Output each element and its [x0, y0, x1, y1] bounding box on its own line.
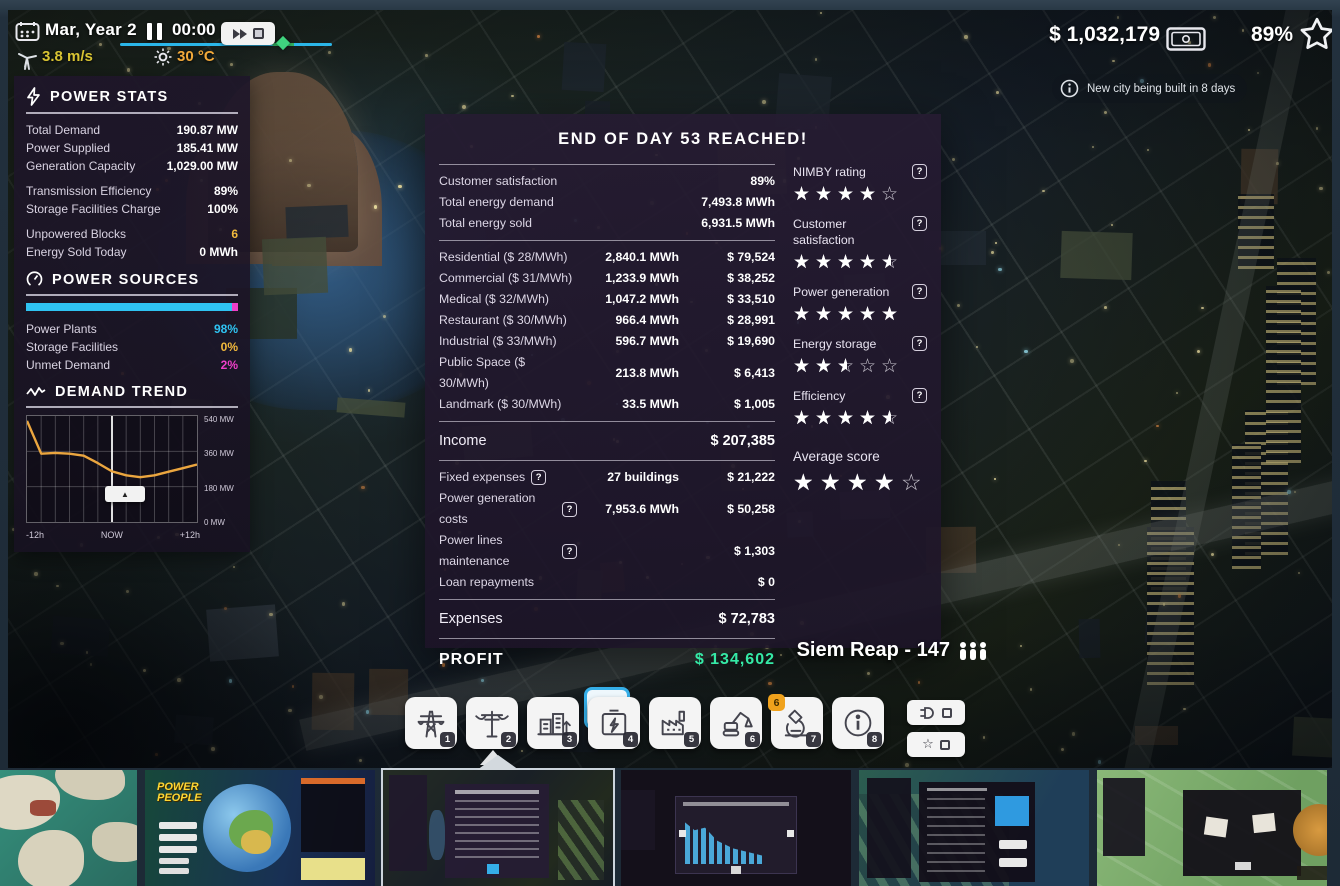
help-icon[interactable]: ?: [912, 284, 927, 299]
divider: [439, 240, 775, 241]
collapse-panel-button[interactable]: ▲: [105, 486, 145, 502]
notification-text: New city being built in 8 days: [1087, 83, 1235, 95]
rating-customer-satisfaction: Customer satisfaction?☆★☆★☆★☆★☆★: [793, 216, 927, 273]
star-icon: ☆★: [815, 184, 834, 205]
expense-row: Fixed expenses?27 buildings$ 21,222: [439, 467, 775, 488]
help-icon[interactable]: ?: [562, 544, 577, 559]
divider: [439, 599, 775, 600]
star-icon: ☆★: [793, 471, 816, 496]
expenses-row: Expenses$ 72,783: [439, 606, 775, 632]
star-icon: ☆★: [793, 356, 812, 377]
star-icon: ☆★: [881, 408, 900, 429]
thumbnail-chart-screen[interactable]: [621, 770, 851, 886]
hotkey-badge: 2: [501, 732, 516, 747]
summary-row: Customer satisfaction89%: [439, 171, 775, 192]
star-icon: ☆★: [837, 408, 856, 429]
thumbnail-map[interactable]: [0, 770, 137, 886]
star-icon: ☆★: [815, 304, 834, 325]
revenue-row: Medical ($ 32/MWh)1,047.2 MWh$ 33,510: [439, 289, 775, 310]
city-name-label: Siem Reap - 147: [668, 639, 988, 662]
power-overlay-toggle[interactable]: [907, 700, 965, 725]
plug-icon: [920, 706, 936, 720]
star-icon: ☆★: [901, 471, 924, 496]
star-icon: ☆★: [881, 252, 900, 273]
demand-trend-chart: 540 MW 360 MW 180 MW 0 MW: [26, 415, 238, 527]
star-icon: ☆★: [837, 184, 856, 205]
source-row: Power Plants98%: [26, 320, 238, 338]
star-rating: ☆★☆★☆★☆★☆★: [793, 252, 927, 273]
divider: [439, 164, 775, 165]
income-row: Income$ 207,385: [439, 428, 775, 454]
steam-screenshot-page: Mar, Year 2 00:00 3.8 m/s 30 °C $ 1,032,…: [0, 0, 1340, 886]
star-rating: ☆★☆★☆★☆★☆★: [793, 471, 927, 496]
collapse-arrow-icon: ▲: [121, 490, 129, 499]
research-count-badge: 6: [768, 694, 785, 711]
source-row: Unmet Demand2%: [26, 356, 238, 374]
help-icon[interactable]: ?: [562, 502, 577, 517]
demand-trend-header: DEMAND TREND: [26, 384, 238, 400]
power-source-segment: [26, 303, 232, 311]
hotkey-badge: 7: [806, 732, 821, 747]
toolbar-demolish-button[interactable]: 6: [710, 697, 762, 749]
power-stats-header: POWER STATS: [26, 87, 238, 106]
star-icon: ☆★: [881, 184, 900, 205]
population-icon: [958, 641, 988, 661]
revenue-row: Residential ($ 28/MWh)2,840.1 MWh$ 79,52…: [439, 247, 775, 268]
star-icon: ☆★: [874, 471, 897, 496]
hotkey-badge: 5: [684, 732, 699, 747]
thumbnail-current[interactable]: [383, 770, 613, 886]
revenue-row: Industrial ($ 33/MWh)596.7 MWh$ 19,690: [439, 331, 775, 352]
game-clock: 00:00: [172, 20, 215, 40]
wind-speed: 3.8 m/s: [42, 48, 93, 65]
sun-icon: [154, 48, 172, 66]
divider: [439, 460, 775, 461]
rating-efficiency: Efficiency?☆★☆★☆★☆★☆★: [793, 388, 927, 429]
power-stats-title: POWER STATS: [50, 89, 168, 105]
banknote-icon: [1166, 27, 1206, 51]
star-icon: ☆★: [793, 184, 812, 205]
toggle-box-icon: [940, 740, 950, 750]
stat-row: Transmission Efficiency89%: [26, 182, 238, 200]
gauge-icon: [26, 271, 43, 288]
help-icon[interactable]: ?: [912, 216, 927, 231]
star-icon: ☆★: [793, 408, 812, 429]
expense-row: Power lines maintenance?$ 1,303: [439, 530, 775, 572]
stat-row: Total Demand190.87 MW: [26, 121, 238, 139]
star-icon: ☆★: [847, 471, 870, 496]
star-rating: ☆★☆★☆★☆★☆★: [793, 184, 927, 205]
toolbar-consumers-button[interactable]: 3: [527, 697, 579, 749]
star-rating: ☆★☆★☆★☆★☆★: [793, 356, 927, 377]
selected-thumbnail-notch: [477, 755, 519, 770]
money-balance: $ 1,032,179: [898, 23, 1160, 47]
hotkey-badge: 1: [440, 732, 455, 747]
lightning-icon: [26, 87, 41, 106]
hotkey-badge: 4: [623, 732, 638, 747]
rating-power-generation: Power generation?☆★☆★☆★☆★☆★: [793, 284, 927, 325]
star-outline-icon: ☆: [922, 739, 934, 751]
game-date: Mar, Year 2: [45, 20, 137, 40]
notification-banner[interactable]: New city being built in 8 days: [1052, 74, 1247, 103]
power-sources-header: POWER SOURCES: [26, 271, 238, 288]
wind-turbine-icon: [14, 45, 40, 71]
stat-row: Generation Capacity1,029.00 MW: [26, 157, 238, 175]
thumbnail-title-screen[interactable]: POWER PEOPLE: [145, 770, 375, 886]
pause-button[interactable]: [147, 23, 162, 40]
game-screenshot: Mar, Year 2 00:00 3.8 m/s 30 °C $ 1,032,…: [8, 10, 1332, 768]
star-icon: ☆★: [859, 252, 878, 273]
logo-text: PEOPLE: [157, 793, 202, 804]
toolbar-power-plants-button[interactable]: 5: [649, 697, 701, 749]
power-sources-title: POWER SOURCES: [52, 272, 199, 288]
screenshot-carousel: POWER PEOPLE: [0, 770, 1340, 886]
temperature: 30 °C: [177, 48, 215, 65]
toggle-box-icon: [942, 708, 952, 718]
chart-y-axis: 540 MW 360 MW 180 MW 0 MW: [204, 415, 234, 527]
thumbnail-research-screen[interactable]: [1097, 770, 1327, 886]
star-icon: ☆★: [815, 408, 834, 429]
dialog-title: END OF DAY 53 REACHED!: [439, 122, 927, 158]
chart-x-axis: -12h NOW +12h: [26, 530, 200, 540]
toolbar-batteries-button[interactable]: 4: [588, 697, 640, 749]
revenue-row: Restaurant ($ 30/MWh)966.4 MWh$ 28,991: [439, 310, 775, 331]
summary-row: Total energy sold6,931.5 MWh: [439, 213, 775, 234]
help-icon[interactable]: ?: [531, 470, 546, 485]
expense-row: Power generation costs?7,953.6 MWh$ 50,2…: [439, 488, 775, 530]
toolbar-research-button[interactable]: 6 7: [771, 697, 823, 749]
star-icon: ☆★: [859, 304, 878, 325]
month-progress-marker: [276, 36, 290, 50]
hotkey-badge: 6: [745, 732, 760, 747]
rating-overlay-toggle[interactable]: ☆: [907, 732, 965, 757]
power-sources-bar: [26, 303, 238, 311]
hotkey-badge: 3: [562, 732, 577, 747]
summary-row: Total energy demand7,493.8 MWh: [439, 192, 775, 213]
info-icon: [1060, 79, 1079, 98]
star-icon: ☆★: [837, 304, 856, 325]
help-icon[interactable]: ?: [912, 164, 927, 179]
city-rating-star-icon: [1299, 16, 1332, 52]
city-rating-percent: 89%: [1208, 23, 1293, 47]
stat-row: Unpowered Blocks6: [26, 225, 238, 243]
speed-toggle-icon: [253, 28, 264, 39]
fast-forward-button[interactable]: [221, 22, 275, 45]
source-row: Storage Facilities0%: [26, 338, 238, 356]
hotkey-badge: 8: [867, 732, 882, 747]
star-icon: ☆★: [859, 184, 878, 205]
toolbar-info-button[interactable]: 8: [832, 697, 884, 749]
stat-row: Energy Sold Today0 MWh: [26, 243, 238, 261]
stat-row: Storage Facilities Charge100%: [26, 200, 238, 218]
divider: [439, 421, 775, 422]
star-icon: ☆★: [815, 356, 834, 377]
rating-nimby: NIMBY rating?☆★☆★☆★☆★☆★: [793, 164, 927, 205]
revenue-row: Public Space ($ 30/MWh)213.8 MWh$ 6,413: [439, 352, 775, 394]
star-icon: ☆★: [793, 304, 812, 325]
help-icon[interactable]: ?: [912, 336, 927, 351]
divider: [26, 406, 238, 408]
revenue-row: Commercial ($ 31/MWh)1,233.9 MWh$ 38,252: [439, 268, 775, 289]
expense-row: Loan repayments$ 0: [439, 572, 775, 593]
divider: [26, 294, 238, 296]
divider: [26, 112, 238, 114]
star-rating: ☆★☆★☆★☆★☆★: [793, 408, 927, 429]
help-icon[interactable]: ?: [912, 388, 927, 403]
fast-forward-icon: [232, 28, 248, 40]
rating-average-score: Average score☆★☆★☆★☆★☆★: [793, 449, 927, 496]
star-icon: ☆★: [859, 356, 878, 377]
power-stats-panel: POWER STATS Total Demand190.87 MW Power …: [14, 76, 250, 552]
star-icon: ☆★: [881, 356, 900, 377]
power-source-segment: [232, 303, 238, 311]
star-rating: ☆★☆★☆★☆★☆★: [793, 304, 927, 325]
end-of-day-dialog: END OF DAY 53 REACHED! Customer satisfac…: [425, 114, 941, 648]
star-icon: ☆★: [859, 408, 878, 429]
toolbar-transmission-towers-button[interactable]: 1: [405, 697, 457, 749]
calendar-icon: [15, 21, 40, 42]
trend-line-icon: [26, 386, 46, 398]
star-icon: ☆★: [881, 304, 900, 325]
thumbnail-build-menu[interactable]: [859, 770, 1089, 886]
revenue-row: Landmark ($ 30/MWh)33.5 MWh$ 1,005: [439, 394, 775, 415]
stat-row: Power Supplied185.41 MW: [26, 139, 238, 157]
star-icon: ☆★: [837, 252, 856, 273]
star-icon: ☆★: [820, 471, 843, 496]
rating-energy-storage: Energy storage?☆★☆★☆★☆★☆★: [793, 336, 927, 377]
toolbar-power-lines-button[interactable]: 2: [466, 697, 518, 749]
star-icon: ☆★: [793, 252, 812, 273]
star-icon: ☆★: [815, 252, 834, 273]
star-icon: ☆★: [837, 356, 856, 377]
demand-trend-title: DEMAND TREND: [55, 384, 188, 400]
build-toolbar: 1 2 3 4 5: [405, 697, 884, 749]
